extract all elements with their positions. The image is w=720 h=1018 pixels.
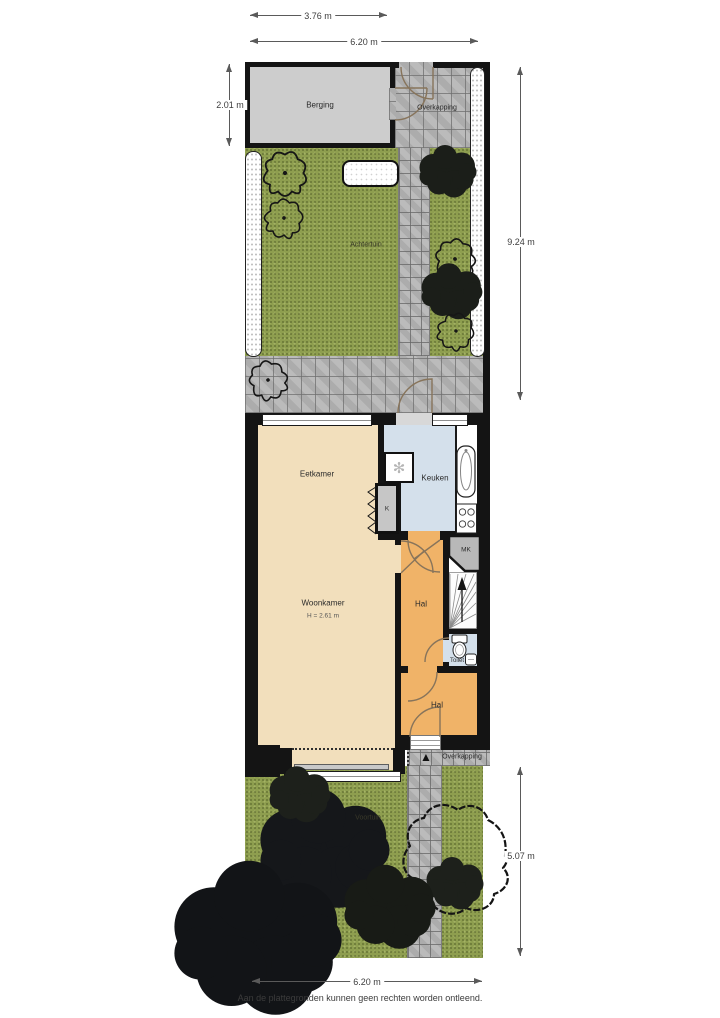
woonkamer-hal-door-opening	[395, 545, 401, 573]
dimension-label-berging-height: 2.01 m	[213, 100, 247, 110]
back-door-opening	[396, 413, 432, 425]
woonkamer-ceiling-label: H = 2.61 m	[307, 613, 339, 620]
fan-icon: ✻	[393, 459, 406, 477]
dimension-label-achtertuin-height: 9.24 m	[504, 237, 538, 247]
area-voortuin	[245, 766, 483, 958]
dimension-label-plot-width-bottom: 6.20 m	[350, 977, 384, 987]
keuken-hal-door-opening	[408, 531, 440, 540]
room-eetkamer-label: Eetkamer	[300, 470, 334, 479]
garden-path	[398, 148, 430, 356]
meter-closet	[449, 536, 480, 571]
bay-radiator	[294, 764, 389, 770]
dimension-line-achtertuin-height	[520, 67, 521, 400]
wall-top-right	[433, 62, 490, 68]
stairs	[450, 573, 477, 629]
room-keuken-label: Keuken	[421, 474, 448, 483]
window-eetkamer	[262, 414, 372, 426]
floorplan-canvas: 3.76 m 6.20 m 2.01 m 9.24 m 5.07 m 6.20 …	[0, 0, 720, 1018]
hedge-right	[470, 67, 485, 357]
terrace	[245, 356, 483, 413]
wall-house-left	[245, 413, 258, 775]
toilet-door-opening	[443, 640, 449, 662]
bay-window-glass	[286, 771, 401, 782]
bay-window-dashed-line	[292, 748, 393, 750]
room-woonkamer-label: Woonkamer	[302, 599, 345, 608]
meterkast-label: MK	[461, 547, 471, 554]
achtertuin-label: Achtertuin	[350, 242, 382, 249]
appliance-ventilation: ✻	[384, 452, 414, 483]
wall-top-gate-post	[395, 62, 399, 68]
dimension-label-plot-width-top: 6.20 m	[347, 37, 381, 47]
room-hal-upper-label: Hal	[415, 600, 427, 609]
window-keuken	[432, 414, 468, 426]
wall-hal-stairs	[443, 536, 449, 632]
dimension-line-voortuin-height	[520, 767, 521, 956]
kitchen-counter	[455, 425, 479, 532]
hal-divider-door-opening	[408, 666, 437, 673]
overkapping-top-label: Overkapping	[417, 105, 457, 112]
closet-k-label: K	[385, 506, 389, 513]
hedge-left	[245, 151, 262, 357]
room-berging-label: Berging	[306, 101, 334, 110]
wall-stairs-toilet	[443, 627, 483, 634]
front-path	[407, 766, 442, 958]
garden-planter	[342, 160, 399, 187]
wall-house-bottom-left	[245, 745, 280, 777]
berging-door-opening	[389, 88, 396, 120]
front-door-threshold	[410, 735, 441, 750]
overkapping-bottom-label: Overkapping	[442, 754, 482, 761]
room-toilet-label: Toilet	[450, 658, 464, 664]
room-hal-lower-label: Hal	[431, 701, 443, 710]
voortuin-label: Voortuin	[355, 815, 381, 822]
wall-house-right	[477, 413, 490, 750]
footer-disclaimer: Aan de plattegronden kunnen geen rechten…	[0, 993, 720, 1003]
dimension-label-berging-width: 3.76 m	[301, 11, 335, 21]
dimension-label-voortuin-height: 5.07 m	[504, 851, 538, 861]
north-arrow-icon: ▲	[420, 750, 432, 764]
